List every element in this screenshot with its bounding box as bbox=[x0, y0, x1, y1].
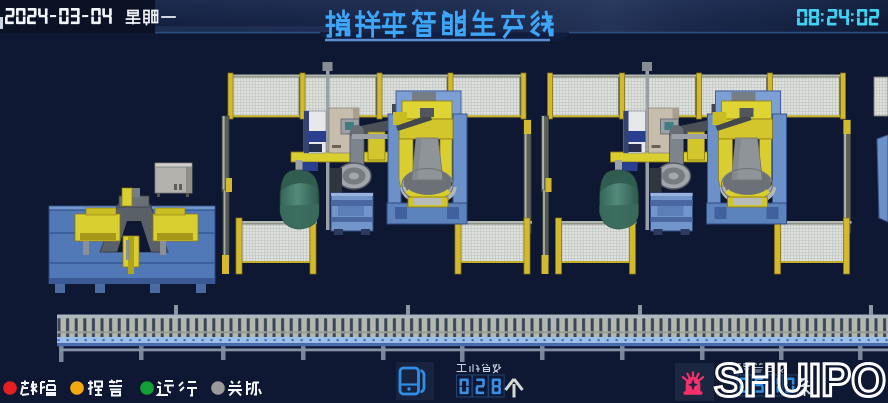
svg-text:SHUIPO: SHUIPO bbox=[714, 354, 886, 403]
